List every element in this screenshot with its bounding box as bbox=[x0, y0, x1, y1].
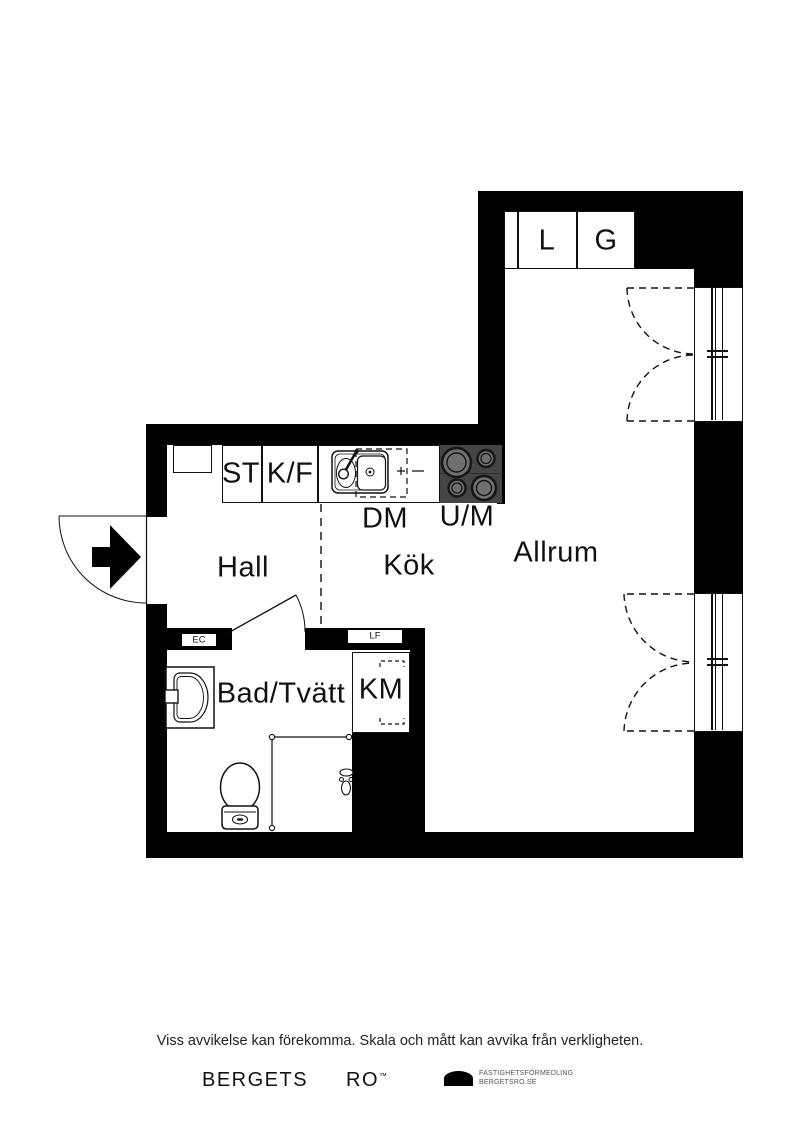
wash-basin-icon bbox=[165, 667, 214, 728]
wall-kitchen-top bbox=[146, 424, 505, 445]
window-2-casement-arcs bbox=[624, 594, 694, 731]
window-2-glass-line-3 bbox=[722, 594, 724, 730]
window-1-glass-line-2 bbox=[715, 288, 716, 420]
wall-left-of-closets bbox=[478, 191, 505, 445]
lf-label: LF bbox=[369, 631, 380, 642]
shower-icon bbox=[269, 734, 353, 830]
window-1-glass-line bbox=[711, 288, 713, 420]
room-label-bad-tvatt: Bad/Tvätt bbox=[217, 678, 346, 711]
brand-bergets: BERGETS bbox=[202, 1069, 308, 1092]
brand-bergets-text: BERGETS bbox=[202, 1069, 308, 1091]
dishwasher-label: DM bbox=[362, 503, 408, 536]
closet-l-label: L bbox=[539, 225, 556, 258]
oven-micro-label: U/M bbox=[440, 501, 495, 534]
washing-machine-label: KM bbox=[359, 674, 404, 707]
entry-arrow-icon bbox=[92, 525, 141, 589]
window-2 bbox=[694, 593, 743, 732]
disclaimer-text: Viss avvikelse kan förekomma. Skala och … bbox=[0, 1033, 800, 1049]
logo-caption: FASTIGHETSFÖRMEDLING BERGETSRO.SE bbox=[479, 1070, 573, 1087]
dome-logo-icon bbox=[444, 1071, 473, 1086]
fridge-freezer-label: K/F bbox=[267, 458, 314, 491]
closet-divider-1 bbox=[517, 211, 519, 269]
entrance-door bbox=[59, 515, 147, 604]
room-label-hall: Hall bbox=[217, 552, 269, 585]
wall-right-of-closets bbox=[635, 191, 743, 269]
wall-bottom bbox=[146, 832, 743, 858]
window-2-meeting-tick bbox=[707, 658, 728, 660]
logo-caption-line2: BERGETSRO.SE bbox=[479, 1079, 573, 1088]
brand-ro: RO™ bbox=[346, 1069, 389, 1092]
toilet-icon bbox=[221, 763, 260, 829]
counter-divider-kf-sink bbox=[317, 445, 319, 503]
window-2-glass-line-2 bbox=[715, 594, 716, 730]
logo-caption-line1: FASTIGHETSFÖRMEDLING bbox=[479, 1070, 573, 1079]
window-2-meeting-tick-2 bbox=[707, 664, 728, 666]
window-1-glass-line-3 bbox=[722, 288, 724, 420]
wall-below-km bbox=[352, 731, 425, 832]
counter-divider-st-kf bbox=[261, 445, 263, 503]
closet-divider-2 bbox=[576, 211, 578, 269]
floor-plan-page: L G ST K/F DM U/M EC LF KM Hall Kök Allr… bbox=[0, 0, 800, 1131]
window-2-glass-line bbox=[711, 594, 713, 730]
closet-g-label: G bbox=[594, 225, 617, 258]
cabinet-st-label: ST bbox=[222, 458, 260, 491]
room-label-allrum: Allrum bbox=[513, 537, 598, 570]
brand-trademark: ™ bbox=[379, 1071, 389, 1080]
stove bbox=[440, 445, 502, 503]
kitchen-corner-cabinet bbox=[173, 445, 212, 473]
window-1-meeting-tick bbox=[707, 350, 728, 352]
window-1 bbox=[694, 287, 743, 422]
ec-label: EC bbox=[192, 635, 205, 646]
window-1-casement-arcs bbox=[627, 288, 694, 421]
window-1-meeting-tick-2 bbox=[707, 356, 728, 358]
room-label-kok: Kök bbox=[383, 550, 434, 583]
brand-ro-text: RO bbox=[346, 1069, 379, 1091]
wall-right-b bbox=[694, 421, 743, 593]
wall-right-c bbox=[694, 731, 743, 832]
bathroom-door bbox=[228, 595, 305, 633]
wall-left-upper bbox=[146, 445, 167, 517]
wall-right-a bbox=[694, 269, 743, 288]
